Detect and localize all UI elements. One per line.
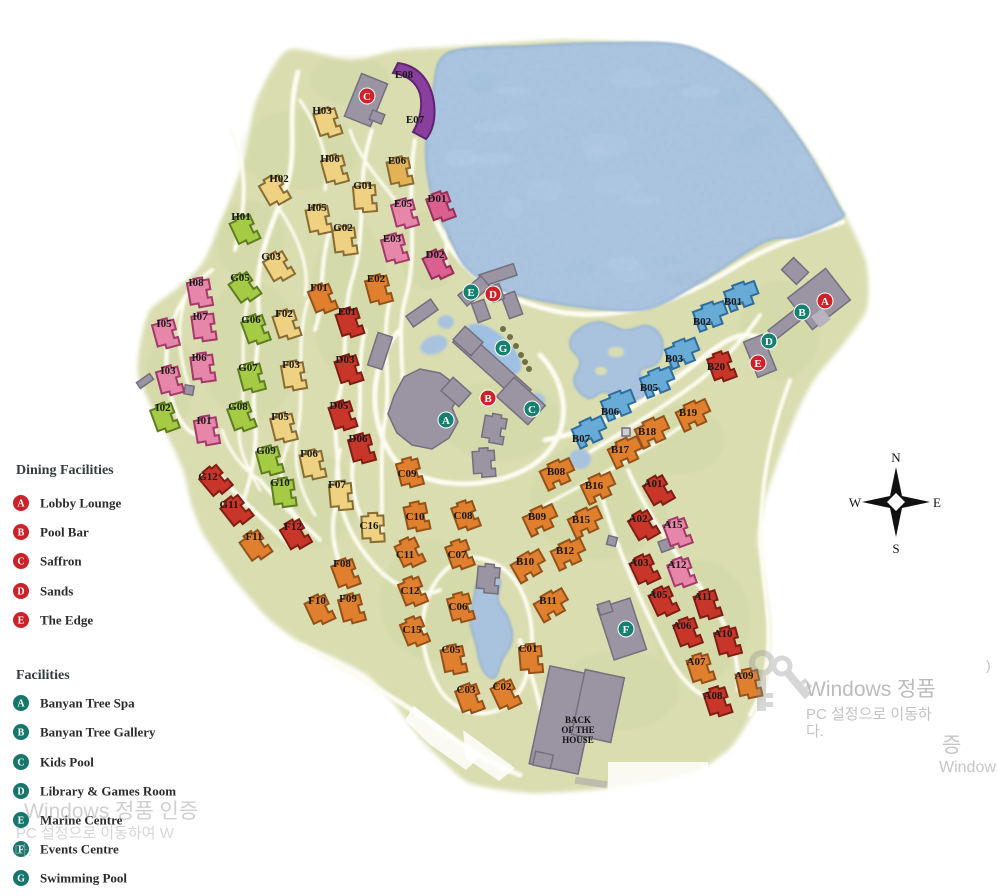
svg-text:G12: G12	[198, 471, 218, 483]
svg-text:Windows 정품 인증: Windows 정품 인증	[24, 800, 198, 823]
svg-text:I07: I07	[192, 311, 208, 323]
svg-text:The Edge: The Edge	[40, 613, 93, 628]
svg-text:C12: C12	[401, 585, 420, 597]
svg-text:G: G	[17, 874, 25, 885]
svg-text:B16: B16	[585, 480, 604, 492]
svg-text:D: D	[489, 289, 497, 301]
svg-text:Swimming Pool: Swimming Pool	[40, 871, 127, 886]
svg-text:I03: I03	[160, 365, 176, 377]
svg-text:G08: G08	[228, 401, 248, 413]
svg-text:D03: D03	[336, 354, 355, 366]
svg-text:A03: A03	[630, 557, 649, 569]
svg-text:A: A	[442, 415, 450, 427]
svg-text:Kids Pool: Kids Pool	[40, 755, 94, 770]
svg-text:F01: F01	[310, 282, 328, 294]
svg-text:H03: H03	[312, 105, 332, 117]
svg-text:F02: F02	[275, 308, 293, 320]
svg-text:B09: B09	[528, 511, 547, 523]
svg-text:B06: B06	[601, 406, 620, 418]
svg-text:S: S	[892, 541, 899, 556]
svg-text:A10: A10	[714, 628, 733, 640]
svg-text:BACK: BACK	[565, 715, 591, 725]
svg-text:A: A	[17, 499, 25, 510]
svg-text:W: W	[849, 495, 862, 510]
svg-text:E02: E02	[367, 273, 386, 285]
svg-text:C05: C05	[442, 644, 461, 656]
svg-text:B: B	[18, 528, 25, 539]
svg-text:B11: B11	[539, 595, 557, 607]
svg-text:D06: D06	[349, 433, 368, 445]
svg-text:F05: F05	[271, 411, 289, 423]
svg-text:C06: C06	[449, 601, 468, 613]
svg-text:B17: B17	[611, 444, 630, 456]
svg-text:Lobby Lounge: Lobby Lounge	[40, 496, 122, 511]
svg-text:C08: C08	[454, 510, 473, 522]
svg-text:F08: F08	[333, 558, 351, 570]
svg-text:A09: A09	[735, 670, 754, 682]
svg-text:A06: A06	[673, 620, 692, 632]
svg-text:Banyan Tree Gallery: Banyan Tree Gallery	[40, 725, 156, 740]
svg-text:I05: I05	[156, 318, 172, 330]
svg-text:N: N	[891, 450, 901, 465]
svg-text:E06: E06	[388, 155, 407, 167]
svg-text:I02: I02	[155, 402, 171, 414]
svg-text:C11: C11	[396, 549, 414, 561]
svg-text:F07: F07	[328, 479, 346, 491]
svg-text:A05: A05	[649, 589, 668, 601]
svg-text:E05: E05	[394, 198, 413, 210]
svg-text:B08: B08	[547, 466, 566, 478]
svg-text:I01: I01	[196, 415, 211, 427]
svg-text:A: A	[17, 699, 25, 710]
svg-text:E07: E07	[406, 114, 425, 126]
svg-text:): )	[986, 657, 991, 673]
svg-text:F03: F03	[282, 359, 300, 371]
svg-text:A15: A15	[664, 519, 683, 531]
svg-text:증: 증	[942, 734, 961, 757]
svg-text:B: B	[484, 393, 492, 405]
svg-text:Sands: Sands	[40, 584, 73, 599]
svg-text:B03: B03	[665, 353, 684, 365]
svg-text:E03: E03	[383, 233, 402, 245]
svg-text:A12: A12	[668, 559, 687, 571]
svg-text:D02: D02	[426, 249, 445, 261]
svg-text:C: C	[17, 758, 24, 769]
svg-text:G06: G06	[241, 314, 261, 326]
svg-text:C: C	[17, 557, 24, 568]
svg-text:다.: 다.	[14, 843, 32, 860]
svg-text:Library & Games Room: Library & Games Room	[40, 784, 176, 799]
svg-text:B20: B20	[707, 361, 726, 373]
svg-text:C10: C10	[406, 511, 425, 523]
svg-text:D: D	[17, 587, 24, 598]
svg-text:F12: F12	[284, 521, 302, 533]
svg-text:F06: F06	[300, 448, 318, 460]
svg-text:B18: B18	[638, 426, 657, 438]
svg-text:B19: B19	[679, 407, 698, 419]
svg-text:H05: H05	[307, 202, 327, 214]
svg-text:C03: C03	[457, 684, 476, 696]
svg-text:F11: F11	[245, 531, 262, 543]
svg-text:C09: C09	[398, 468, 417, 480]
svg-text:A: A	[821, 296, 829, 308]
svg-text:H06: H06	[320, 153, 340, 165]
svg-text:C16: C16	[360, 520, 379, 532]
svg-text:B: B	[18, 728, 25, 739]
svg-text:A01: A01	[644, 478, 663, 490]
svg-text:E: E	[933, 495, 941, 510]
svg-text:G09: G09	[256, 445, 276, 457]
svg-text:E: E	[754, 358, 761, 370]
svg-text:H01: H01	[231, 211, 251, 223]
svg-text:D: D	[765, 336, 773, 348]
svg-text:Windows 정품: Windows 정품	[806, 678, 936, 701]
svg-text:I08: I08	[188, 277, 204, 289]
svg-text:E01: E01	[338, 306, 356, 318]
svg-text:D05: D05	[330, 400, 349, 412]
svg-text:B01: B01	[724, 296, 742, 308]
svg-text:Events Centre: Events Centre	[40, 842, 119, 857]
svg-text:G11: G11	[220, 499, 239, 511]
svg-text:B12: B12	[556, 545, 575, 557]
svg-text:G: G	[499, 343, 508, 355]
svg-text:Banyan Tree Spa: Banyan Tree Spa	[40, 696, 135, 711]
svg-text:B02: B02	[693, 316, 712, 328]
svg-text:C15: C15	[403, 624, 422, 636]
svg-text:D01: D01	[428, 193, 447, 205]
svg-text:G05: G05	[230, 272, 250, 284]
svg-text:D: D	[17, 787, 24, 798]
svg-text:A07: A07	[687, 656, 706, 668]
svg-text:G02: G02	[333, 222, 353, 234]
svg-text:C: C	[528, 404, 536, 416]
svg-text:B: B	[798, 307, 806, 319]
svg-text:G10: G10	[270, 477, 290, 489]
svg-text:B05: B05	[640, 382, 659, 394]
svg-text:A02: A02	[629, 513, 648, 525]
svg-text:I06: I06	[191, 352, 207, 364]
svg-text:E: E	[467, 287, 474, 299]
svg-text:C: C	[363, 91, 371, 103]
svg-text:F09: F09	[339, 593, 357, 605]
svg-text:Dining Facilities: Dining Facilities	[16, 463, 114, 478]
svg-text:Pool Bar: Pool Bar	[40, 525, 89, 540]
svg-text:E: E	[18, 616, 25, 627]
svg-text:G07: G07	[238, 362, 258, 374]
svg-text:Facilities: Facilities	[16, 668, 70, 683]
svg-text:F10: F10	[308, 595, 326, 607]
svg-text:OF THE: OF THE	[561, 725, 594, 735]
svg-text:G03: G03	[261, 251, 281, 263]
svg-text:F: F	[623, 624, 630, 636]
svg-text:Windows: Windows	[939, 759, 997, 776]
svg-text:PC 설정으로 이동하: PC 설정으로 이동하	[806, 706, 932, 723]
svg-text:다.: 다.	[806, 723, 824, 740]
svg-text:H02: H02	[269, 173, 289, 185]
svg-text:HOUSE: HOUSE	[562, 735, 594, 745]
svg-text:PC 설정으로 이동하여 W: PC 설정으로 이동하여 W	[16, 825, 175, 842]
svg-text:G01: G01	[353, 180, 373, 192]
svg-text:C02: C02	[493, 681, 512, 693]
svg-text:E08: E08	[395, 69, 414, 81]
svg-text:B07: B07	[572, 433, 591, 445]
svg-text:Saffron: Saffron	[40, 554, 82, 569]
svg-text:A11: A11	[694, 591, 712, 603]
svg-text:B10: B10	[516, 556, 535, 568]
svg-text:C01: C01	[519, 643, 538, 655]
svg-text:C07: C07	[448, 549, 467, 561]
svg-text:A08: A08	[704, 690, 723, 702]
svg-text:B15: B15	[572, 514, 591, 526]
